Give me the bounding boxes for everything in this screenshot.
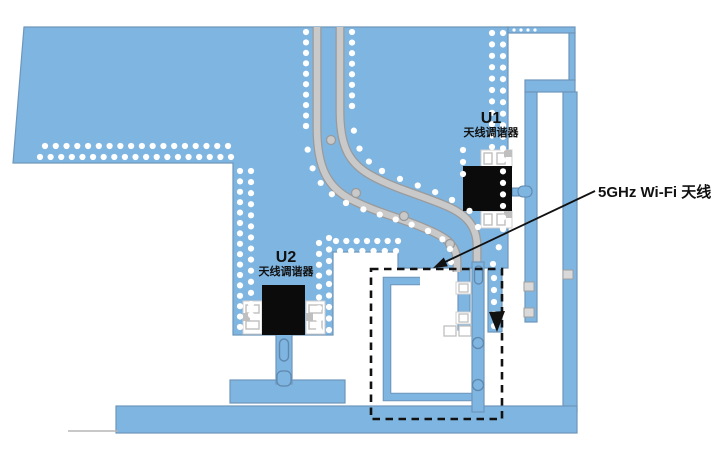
feed-via <box>473 380 484 391</box>
via-dot <box>106 143 112 149</box>
via-dot <box>360 206 366 212</box>
via-dot <box>349 82 355 88</box>
via-dot <box>343 238 349 244</box>
via-dot <box>101 154 107 160</box>
via-dot <box>489 53 495 59</box>
via-dot <box>117 143 123 149</box>
via-dot <box>237 220 243 226</box>
via-dot <box>500 168 506 174</box>
via-dot <box>248 245 254 251</box>
via-dot <box>74 143 80 149</box>
via-dot <box>395 238 401 244</box>
u1-description: 天线调谐器 <box>461 127 521 140</box>
via-dot <box>58 154 64 160</box>
pcb-copper-artwork <box>0 0 720 462</box>
via-dot <box>248 301 254 307</box>
via-dot <box>466 208 472 214</box>
antenna-right-strip <box>569 33 575 81</box>
via-dot <box>48 154 54 160</box>
via-dot <box>217 154 223 160</box>
via-dot <box>203 143 209 149</box>
feed-component-pad <box>444 326 456 336</box>
trace-via <box>352 189 361 198</box>
via-dot <box>237 199 243 205</box>
via-dot <box>326 304 332 310</box>
via-dot <box>491 275 497 281</box>
via-dot <box>237 210 243 216</box>
via-dot <box>326 327 332 333</box>
via-dot <box>489 98 495 104</box>
via-dot <box>500 203 506 209</box>
u1-stub-pad <box>518 186 532 197</box>
via-dot <box>337 248 343 254</box>
via-dot <box>489 30 495 36</box>
via-dot <box>248 290 254 296</box>
via-dot <box>489 87 495 93</box>
via-dot <box>193 143 199 149</box>
via-dot <box>316 273 322 279</box>
via-dot <box>326 269 332 275</box>
via-dot <box>354 238 360 244</box>
via-dot <box>491 299 497 305</box>
via-dot <box>432 189 438 195</box>
via-dot <box>316 251 322 257</box>
via-dot <box>349 61 355 67</box>
via-dot <box>309 165 315 171</box>
via-dot <box>500 226 506 232</box>
u1-refdes: U1 <box>461 110 521 127</box>
via-dot <box>139 143 145 149</box>
via-dot <box>500 30 506 36</box>
via-dot <box>385 238 391 244</box>
via-dot <box>393 248 399 254</box>
via-dot <box>326 315 332 321</box>
via-dot <box>303 71 309 77</box>
via-dot <box>329 191 335 197</box>
via-dot <box>491 287 497 293</box>
via-dot <box>500 180 506 186</box>
via-dot <box>303 123 309 129</box>
via-dot <box>185 154 191 160</box>
via-dot <box>343 200 349 206</box>
via-dot <box>150 143 156 149</box>
via-dot <box>316 240 322 246</box>
via-dot <box>496 244 502 250</box>
feed-component-pad <box>459 314 468 322</box>
via-dot <box>425 228 431 234</box>
via-dot <box>359 248 365 254</box>
via-dot <box>90 154 96 160</box>
antenna-u-top <box>525 80 575 92</box>
via-dot <box>460 171 466 177</box>
via-dot <box>348 248 354 254</box>
via-dot <box>371 248 377 254</box>
via-dot <box>225 143 231 149</box>
via-dot <box>237 293 243 299</box>
via-dot <box>85 143 91 149</box>
trace-via <box>327 136 336 145</box>
via-dot <box>248 257 254 263</box>
via-dot <box>397 176 403 182</box>
u1-tuner-label: U1 天线调谐器 <box>461 110 521 140</box>
via-dot <box>237 230 243 236</box>
via-dot <box>316 283 322 289</box>
via-dot <box>248 190 254 196</box>
via-dot <box>500 157 506 163</box>
via-dot <box>409 222 415 228</box>
via-dot <box>382 248 388 254</box>
via-dot <box>349 29 355 35</box>
via-dot <box>318 180 324 186</box>
via-dot <box>303 50 309 56</box>
via-dot <box>500 99 506 105</box>
leg-component-pad <box>524 308 534 317</box>
via-dot <box>326 258 332 264</box>
via-dot <box>364 238 370 244</box>
feed-via <box>473 338 484 349</box>
via-dot <box>237 168 243 174</box>
via-dot <box>237 178 243 184</box>
via-dot <box>132 154 138 160</box>
u2-feed-pad <box>277 371 291 386</box>
via-dot <box>303 39 309 45</box>
via-dot <box>333 238 339 244</box>
via-dot <box>122 154 128 160</box>
via-dot <box>316 327 322 333</box>
via-dot <box>248 234 254 240</box>
via-dot <box>303 102 309 108</box>
u2-description: 天线调谐器 <box>256 266 316 279</box>
via-dot <box>237 189 243 195</box>
via-dot <box>447 246 453 252</box>
via-dot <box>305 147 311 153</box>
via-dot <box>316 316 322 322</box>
via-dot <box>500 214 506 220</box>
via-dot <box>500 88 506 94</box>
via-dot <box>415 182 421 188</box>
via-dot <box>526 28 529 31</box>
pcb-layout-diagram: U1 天线调谐器 U2 天线调谐器 5GHz Wi-Fi 天线 <box>0 0 720 462</box>
via-dot <box>366 158 372 164</box>
via-dot <box>237 282 243 288</box>
via-dot <box>349 103 355 109</box>
via-dot <box>316 262 322 268</box>
via-dot <box>500 145 506 151</box>
u2-refdes: U2 <box>256 249 316 266</box>
via-dot <box>303 29 309 35</box>
via-dot <box>316 305 322 311</box>
via-dot <box>500 53 506 59</box>
via-dot <box>374 238 380 244</box>
via-dot <box>500 76 506 82</box>
via-dot <box>326 235 332 241</box>
via-dot <box>326 281 332 287</box>
antenna-u-right-leg <box>563 92 577 412</box>
via-dot <box>128 143 134 149</box>
via-dot <box>460 159 466 165</box>
via-dot <box>460 147 466 153</box>
u1-pads-top-pad <box>484 153 492 164</box>
via-dot <box>37 154 43 160</box>
via-dot <box>237 272 243 278</box>
u2-tuner-label: U2 天线调谐器 <box>256 249 316 279</box>
via-dot <box>96 143 102 149</box>
via-dot <box>326 246 332 252</box>
via-dot <box>143 154 149 160</box>
via-dot <box>489 76 495 82</box>
via-dot <box>237 303 243 309</box>
leg-component-pad <box>563 270 573 279</box>
via-dot <box>248 201 254 207</box>
ground-pour <box>13 27 508 335</box>
via-dot <box>449 197 455 203</box>
via-dot <box>207 154 213 160</box>
u2-pads-right-pad <box>306 313 313 321</box>
via-dot <box>171 143 177 149</box>
via-dot <box>379 168 385 174</box>
via-dot <box>326 292 332 298</box>
u2-chip <box>262 285 305 335</box>
via-dot <box>160 143 166 149</box>
via-dot <box>500 191 506 197</box>
via-dot <box>214 143 220 149</box>
via-dot <box>248 168 254 174</box>
via-dot <box>489 41 495 47</box>
via-dot <box>500 41 506 47</box>
via-dot <box>228 154 234 160</box>
via-dot <box>490 261 496 267</box>
via-dot <box>42 143 48 149</box>
via-dot <box>237 251 243 257</box>
via-dot <box>248 212 254 218</box>
via-dot <box>63 143 69 149</box>
via-dot <box>248 223 254 229</box>
via-dot <box>248 279 254 285</box>
via-dot <box>533 28 536 31</box>
via-dot <box>489 144 495 150</box>
via-dot <box>53 143 59 149</box>
via-dot <box>500 64 506 70</box>
via-dot <box>164 154 170 160</box>
via-dot <box>356 146 362 152</box>
via-dot <box>512 28 515 31</box>
via-dot <box>175 154 181 160</box>
via-dot <box>69 154 75 160</box>
via-dot <box>248 312 254 318</box>
via-dot <box>303 60 309 66</box>
via-dot <box>154 154 160 160</box>
via-dot <box>237 241 243 247</box>
feed-component-pad <box>459 284 468 292</box>
via-dot <box>349 92 355 98</box>
via-dot <box>316 294 322 300</box>
via-dot <box>393 216 399 222</box>
via-dot <box>349 50 355 56</box>
via-dot <box>248 179 254 185</box>
bottom-ground-bar <box>116 406 577 433</box>
trace-via <box>400 212 409 221</box>
via-dot <box>237 262 243 268</box>
u2-pads-left-pad <box>246 321 259 329</box>
via-dot <box>377 211 383 217</box>
via-dot <box>351 128 357 134</box>
via-dot <box>248 268 254 274</box>
via-dot <box>79 154 85 160</box>
via-dot <box>196 154 202 160</box>
u1-pads-bottom-pad <box>484 214 492 225</box>
via-dot <box>489 64 495 70</box>
via-dot <box>519 28 522 31</box>
via-dot <box>349 71 355 77</box>
via-dot <box>439 236 445 242</box>
via-dot <box>303 92 309 98</box>
u1-pads-top-pad <box>504 150 512 157</box>
via-dot <box>182 143 188 149</box>
feed-component-pad <box>459 326 471 336</box>
via-dot <box>303 81 309 87</box>
via-dot <box>349 39 355 45</box>
leg-component-pad <box>524 282 534 291</box>
via-dot <box>475 224 481 230</box>
antenna-top-strip <box>508 27 575 33</box>
antenna-callout-label: 5GHz Wi-Fi 天线 <box>598 181 711 202</box>
via-dot <box>303 112 309 118</box>
via-dot <box>111 154 117 160</box>
via-dot <box>237 324 243 330</box>
via-dot <box>237 314 243 320</box>
